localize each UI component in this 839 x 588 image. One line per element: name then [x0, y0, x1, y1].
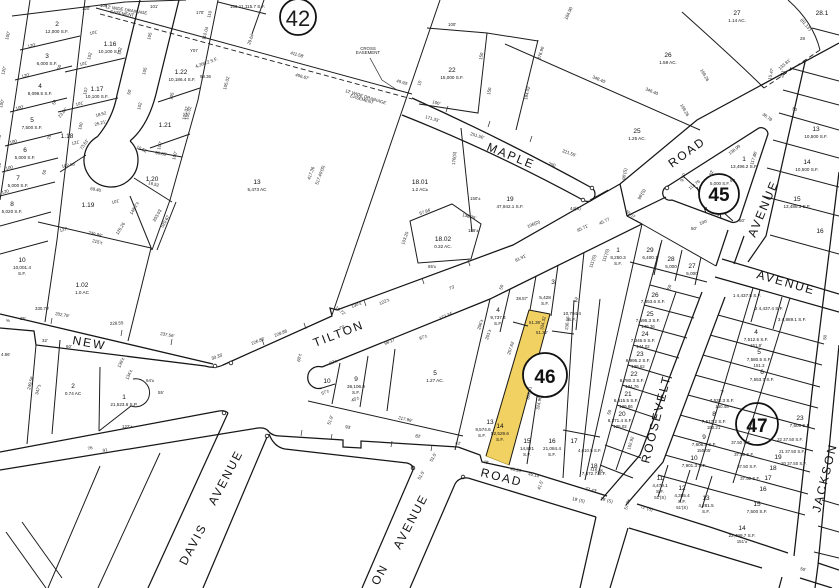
- svg-text:22: 22: [448, 67, 456, 74]
- svg-text:7,500 S.F.: 7,500 S.F.: [22, 125, 43, 130]
- svg-text:5: 5: [757, 349, 761, 356]
- svg-text:S.F.: S.F.: [496, 437, 504, 442]
- svg-text:22 37.50 S.F.: 22 37.50 S.F.: [777, 437, 803, 442]
- svg-text:7,853.6 S.F.: 7,853.6 S.F.: [641, 299, 666, 304]
- svg-text:7: 7: [16, 175, 20, 182]
- svg-text:S.F.: S.F.: [18, 271, 26, 276]
- svg-text:6: 6: [760, 369, 764, 376]
- svg-text:1.17: 1.17: [91, 86, 104, 93]
- svg-text:S.F.: S.F.: [494, 321, 502, 326]
- svg-text:S.F.: S.F.: [352, 390, 360, 395]
- svg-text:1: 1: [742, 156, 746, 163]
- svg-text:18.02: 18.02: [435, 236, 452, 243]
- svg-text:7,595.3 S.F.: 7,595.3 S.F.: [636, 318, 661, 323]
- svg-text:7,553.7 S.F.: 7,553.7 S.F.: [750, 377, 775, 382]
- svg-text:9,574.6: 9,574.6: [475, 427, 491, 432]
- svg-text:228.59: 228.59: [110, 320, 124, 326]
- svg-text:1.22: 1.22: [175, 69, 188, 76]
- svg-text:10: 10: [323, 378, 331, 385]
- svg-text:6,995.2 S.F.: 6,995.2 S.F.: [626, 358, 651, 363]
- svg-text:139.62: 139.62: [631, 364, 645, 369]
- svg-text:60': 60': [739, 218, 745, 223]
- svg-text:5,000: 5,000: [686, 271, 698, 276]
- svg-text:24: 24: [641, 331, 649, 338]
- svg-text:5: 5: [433, 370, 437, 377]
- svg-text:67: 67: [730, 178, 735, 183]
- svg-text:2 4,437.4 S.F.: 2 4,437.4 S.F.: [755, 306, 783, 311]
- svg-text:22,499.7 S.F.: 22,499.7 S.F.: [728, 533, 755, 538]
- svg-text:5,000 S.F.: 5,000 S.F.: [8, 183, 29, 188]
- svg-text:12: 12: [678, 485, 686, 492]
- svg-text:25': 25': [20, 316, 26, 321]
- svg-text:6,400.1: 6,400.1: [642, 255, 658, 260]
- svg-text:64'±: 64'±: [146, 378, 155, 383]
- svg-text:13: 13: [812, 126, 820, 133]
- svg-text:5,020 S.F.: 5,020 S.F.: [2, 209, 23, 214]
- svg-text:16: 16: [816, 228, 824, 235]
- svg-text:3: 3: [705, 206, 708, 211]
- svg-text:52,529.6: 52,529.6: [491, 431, 509, 436]
- svg-text:1: 1: [616, 247, 620, 254]
- svg-text:125.02: 125.02: [613, 424, 627, 429]
- svg-text:10,001.4: 10,001.4: [13, 265, 31, 270]
- svg-text:7: 7: [720, 390, 724, 397]
- svg-text:15: 15: [753, 501, 761, 508]
- svg-text:4.86': 4.86': [1, 352, 11, 357]
- svg-text:151.9': 151.9': [750, 343, 762, 348]
- svg-text:4: 4: [496, 307, 500, 314]
- svg-text:8,250.3: 8,250.3: [610, 255, 626, 260]
- svg-text:28: 28: [800, 36, 805, 41]
- svg-text:60': 60': [66, 344, 72, 349]
- svg-text:150.21': 150.21': [707, 425, 721, 430]
- svg-text:7,532.3 S.F.: 7,532.3 S.F.: [710, 398, 735, 403]
- svg-text:1.0 AC: 1.0 AC: [75, 290, 89, 295]
- svg-text:S.F.: S.F.: [523, 452, 531, 457]
- svg-text:10,100 S.F.: 10,100 S.F.: [85, 94, 108, 99]
- svg-text:S.F.: S.F.: [656, 489, 664, 494]
- svg-text:55': 55': [158, 390, 164, 395]
- svg-text:23: 23: [796, 415, 804, 422]
- svg-text:100': 100': [448, 22, 456, 27]
- svg-text:25: 25: [646, 311, 654, 318]
- svg-text:7,500 S.F.: 7,500 S.F.: [747, 509, 768, 514]
- svg-text:144.02: 144.02: [636, 344, 650, 349]
- svg-text:14: 14: [496, 423, 504, 430]
- svg-text:37.50 S.F.: 37.50 S.F.: [737, 464, 757, 469]
- svg-text:2: 2: [574, 297, 578, 304]
- svg-text:103: 103: [230, 4, 238, 9]
- svg-text:150'±: 150'±: [470, 196, 481, 201]
- svg-text:27: 27: [733, 10, 741, 17]
- svg-text:1.16: 1.16: [104, 41, 117, 48]
- svg-text:3: 3: [45, 53, 49, 60]
- svg-text:29: 29: [646, 247, 654, 254]
- svg-text:1: 1: [122, 394, 126, 401]
- svg-text:10: 10: [18, 257, 26, 264]
- svg-text:32': 32': [42, 338, 48, 343]
- svg-text:9: 9: [702, 434, 706, 441]
- svg-text:45: 45: [708, 185, 730, 206]
- svg-text:10,794.4: 10,794.4: [563, 311, 581, 316]
- svg-text:151'±: 151'±: [737, 539, 748, 544]
- svg-text:6,615.5 S.F.: 6,615.5 S.F.: [614, 398, 639, 403]
- svg-text:37.50 S.F.: 37.50 S.F.: [740, 476, 760, 481]
- svg-text:S.F.: S.F.: [478, 433, 486, 438]
- svg-text:6,371.4 S.F.: 6,371.4 S.F.: [608, 418, 633, 423]
- svg-text:42: 42: [286, 6, 310, 31]
- svg-text:4: 4: [754, 329, 758, 336]
- svg-text:21 37.50 S.F.: 21 37.50 S.F.: [779, 449, 805, 454]
- svg-text:1.2 AC±: 1.2 AC±: [412, 187, 429, 192]
- svg-text:27: 27: [688, 263, 696, 270]
- svg-text:5,000 S.F.: 5,000 S.F.: [15, 155, 36, 160]
- svg-text:28: 28: [667, 256, 675, 263]
- svg-text:16: 16: [759, 486, 767, 493]
- svg-text:S.F.: S.F.: [541, 301, 549, 306]
- svg-text:4,281.5: 4,281.5: [698, 503, 714, 508]
- svg-text:EASEMENT: EASEMENT: [356, 50, 380, 55]
- svg-text:101': 101': [150, 4, 158, 9]
- svg-text:17: 17: [570, 438, 578, 445]
- svg-text:1.27 AC.: 1.27 AC.: [426, 378, 444, 383]
- svg-text:20: 20: [618, 411, 626, 418]
- svg-text:4: 4: [717, 212, 720, 217]
- svg-text:28.1: 28.1: [816, 10, 829, 17]
- svg-text:13: 13: [253, 179, 261, 186]
- svg-text:9,737.4: 9,737.4: [490, 315, 506, 320]
- svg-text:S.F.: S.F.: [678, 499, 686, 504]
- svg-text:1.25 AC.: 1.25 AC.: [628, 136, 646, 141]
- svg-text:51'(S): 51'(S): [676, 505, 688, 510]
- svg-text:0.32 AC.: 0.32 AC.: [434, 244, 452, 249]
- svg-text:13,486.3 S.F.: 13,486.3 S.F.: [783, 204, 810, 209]
- svg-text:37.50 S.F.: 37.50 S.F.: [731, 440, 751, 445]
- svg-text:47: 47: [746, 416, 767, 437]
- svg-text:6,000 S.F.: 6,000 S.F.: [37, 61, 58, 66]
- svg-text:2: 2: [55, 21, 59, 28]
- svg-text:2: 2: [71, 383, 75, 390]
- svg-text:17: 17: [764, 475, 772, 482]
- svg-text:51'(S): 51'(S): [654, 495, 666, 500]
- svg-text:14: 14: [803, 159, 811, 166]
- svg-text:51.39': 51.39': [529, 320, 541, 325]
- svg-text:S.F.: S.F.: [702, 509, 710, 514]
- svg-text:3 4,889.1 S.F.: 3 4,889.1 S.F.: [778, 317, 806, 322]
- svg-text:20 37.50 S.F.: 20 37.50 S.F.: [781, 461, 807, 466]
- svg-text:7,346.5 S.F.: 7,346.5 S.F.: [631, 338, 656, 343]
- svg-text:7,517.2 S.F.: 7,517.2 S.F.: [702, 419, 727, 424]
- svg-text:151.3: 151.3: [754, 363, 766, 368]
- svg-text:26: 26: [651, 292, 659, 299]
- svg-text:1.18: 1.18: [61, 133, 74, 140]
- svg-text:15: 15: [523, 438, 531, 445]
- svg-text:9: 9: [354, 376, 358, 383]
- svg-text:21,523.6 S.P.: 21,523.6 S.P.: [110, 402, 137, 407]
- svg-text:186'±: 186'±: [468, 228, 479, 233]
- svg-text:6: 6: [23, 147, 27, 154]
- svg-text:4,610.5 S.F.: 4,610.5 S.F.: [578, 448, 601, 453]
- svg-text:11: 11: [657, 475, 664, 482]
- svg-text:3: 3: [551, 279, 555, 286]
- svg-text:1.02: 1.02: [76, 282, 89, 289]
- svg-text:Y07: Y07: [190, 48, 198, 53]
- svg-text:15: 15: [793, 196, 801, 203]
- svg-text:℅: ℅: [6, 318, 10, 323]
- svg-text:14,821: 14,821: [520, 446, 534, 451]
- svg-text:12,000 S.F.: 12,000 S.F.: [45, 29, 68, 34]
- svg-text:65'±: 65'±: [428, 264, 437, 269]
- svg-text:22: 22: [630, 371, 638, 378]
- svg-text:5,000: 5,000: [665, 264, 677, 269]
- svg-text:5: 5: [30, 117, 34, 124]
- svg-text:10,500 S.F.: 10,500 S.F.: [804, 134, 827, 139]
- svg-text:7,512.5 S.F.: 7,512.5 S.F.: [744, 337, 769, 342]
- svg-text:15,000 S.F.: 15,000 S.F.: [440, 75, 463, 80]
- svg-text:50': 50': [691, 226, 697, 231]
- svg-text:10,186.4 S.F.: 10,186.4 S.F.: [168, 77, 195, 82]
- svg-text:16: 16: [548, 438, 556, 445]
- svg-text:S.F.: S.F.: [548, 452, 556, 457]
- svg-text:1.14 AC.: 1.14 AC.: [728, 18, 746, 23]
- svg-text:38.57': 38.57': [516, 296, 528, 301]
- svg-text:46: 46: [534, 367, 555, 388]
- svg-text:7,901.3 S.F.: 7,901.3 S.F.: [682, 463, 707, 468]
- svg-text:0.74 AC: 0.74 AC: [65, 391, 82, 396]
- svg-text:25: 25: [633, 128, 641, 135]
- svg-text:4,385.4: 4,385.4: [674, 493, 690, 498]
- svg-text:7,500 S.F.: 7,500 S.F.: [790, 423, 811, 428]
- svg-text:10,500 S.F.: 10,500 S.F.: [795, 167, 818, 172]
- svg-text:44(S): 44(S): [570, 206, 581, 211]
- svg-text:8: 8: [10, 201, 14, 208]
- svg-text:7,606.5 S.F.: 7,606.5 S.F.: [692, 442, 717, 447]
- svg-text:4,479.1: 4,479.1: [652, 483, 668, 488]
- svg-text:13: 13: [702, 495, 710, 502]
- svg-text:122'±: 122'±: [122, 424, 133, 429]
- svg-text:37.50 S.F.: 37.50 S.F.: [734, 452, 754, 457]
- svg-text:1 4,437.5 S.F.: 1 4,437.5 S.F.: [733, 293, 761, 298]
- svg-text:1.58 AC.: 1.58 AC.: [659, 60, 677, 65]
- svg-text:4: 4: [38, 83, 42, 90]
- svg-text:134.76: 134.76: [625, 384, 639, 389]
- svg-text:1.21: 1.21: [159, 122, 172, 129]
- svg-text:23: 23: [636, 351, 644, 358]
- svg-text:5,473 AC: 5,473 AC: [248, 187, 268, 192]
- svg-text:26: 26: [664, 52, 672, 59]
- svg-text:98.36: 98.36: [200, 74, 212, 79]
- svg-text:8: 8: [712, 411, 716, 418]
- svg-text:5,000 S.F.: 5,000 S.F.: [710, 181, 730, 186]
- svg-text:21: 21: [624, 391, 632, 398]
- svg-text:1.19: 1.19: [82, 202, 95, 209]
- svg-text:6,780.3 S.F.: 6,780.3 S.F.: [620, 378, 645, 383]
- svg-text:7,580.5 S.F.: 7,580.5 S.F.: [747, 357, 772, 362]
- svg-text:150.48: 150.48: [715, 404, 729, 409]
- svg-text:S.F.: S.F.: [614, 261, 622, 266]
- svg-text:5,428: 5,428: [539, 295, 551, 300]
- svg-text:129.86: 129.86: [619, 404, 633, 409]
- svg-text:10: 10: [690, 455, 698, 462]
- svg-text:330.70': 330.70': [35, 306, 49, 311]
- svg-text:21,084.4: 21,084.4: [543, 446, 561, 451]
- svg-text:149.36: 149.36: [641, 324, 655, 329]
- svg-text:170': 170': [196, 10, 204, 15]
- svg-text:120': 120': [82, 6, 90, 11]
- svg-text:11,115.7 S.F.: 11,115.7 S.F.: [239, 4, 265, 9]
- svg-text:36,106.9: 36,106.9: [347, 384, 365, 389]
- svg-text:150.05': 150.05': [697, 448, 711, 453]
- svg-text:14: 14: [738, 525, 746, 532]
- svg-text:18.01: 18.01: [412, 179, 429, 186]
- svg-text:8,099.5 S.F.: 8,099.5 S.F.: [28, 91, 53, 96]
- svg-text:19: 19: [774, 454, 782, 461]
- svg-text:18: 18: [769, 465, 777, 472]
- svg-text:51.32': 51.32': [536, 330, 548, 335]
- svg-text:13: 13: [486, 419, 494, 426]
- svg-text:19: 19: [506, 196, 514, 203]
- svg-text:47,942.1 S.F.: 47,942.1 S.F.: [496, 204, 523, 209]
